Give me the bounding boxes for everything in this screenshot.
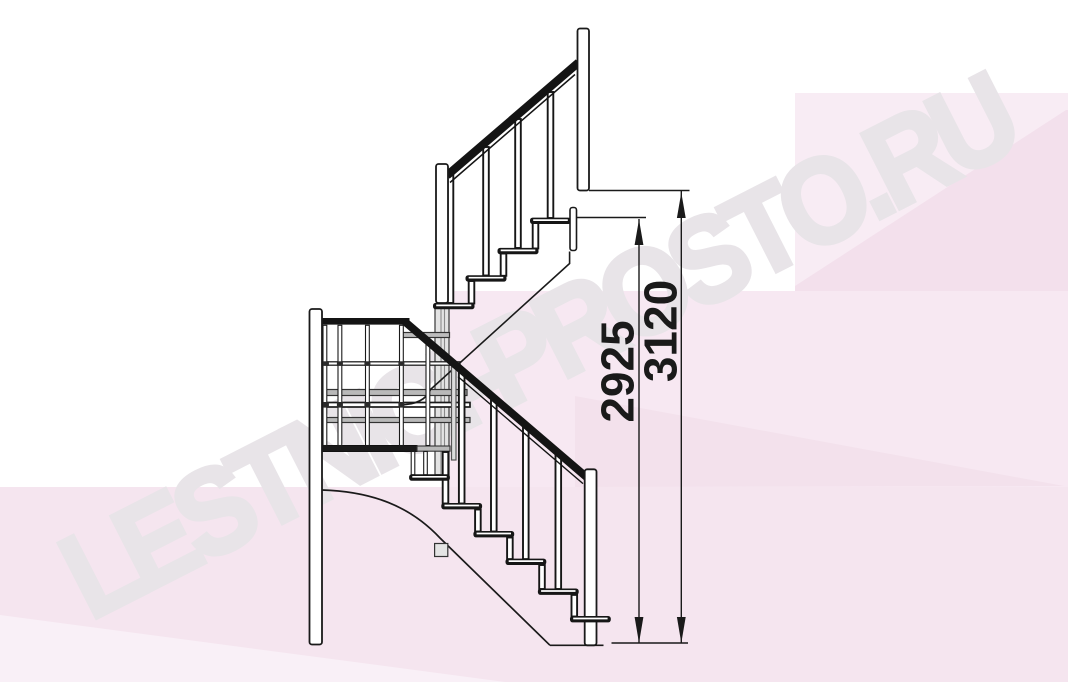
svg-text:3120: 3120 (634, 280, 686, 382)
